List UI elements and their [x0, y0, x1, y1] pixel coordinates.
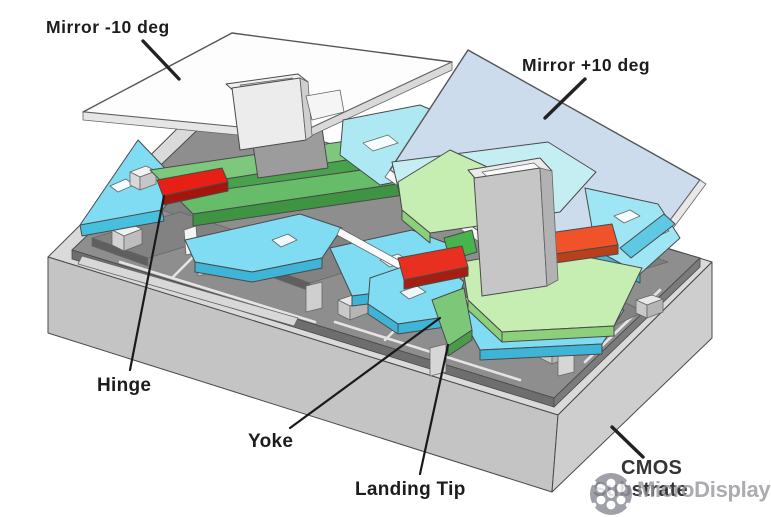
right-mirror-via-tube [468, 158, 558, 296]
flower-icon [590, 473, 632, 515]
yoke-label: Yoke [248, 431, 293, 452]
cmos-label-line1: CMOS [621, 457, 682, 479]
mirror-pos-label: Mirror +10 deg [522, 55, 650, 75]
watermark: MicroDisplay [590, 473, 771, 515]
support-post [306, 282, 322, 312]
cmos-pointer-line [612, 427, 643, 457]
mirror-neg-label: Mirror -10 deg [46, 17, 170, 37]
hinge-label: Hinge [97, 375, 151, 396]
landing-tip-label: Landing Tip [355, 479, 466, 500]
dmd-pixel-diagram: Mirror -10 deg Mirror +10 deg Hinge Yoke… [0, 0, 771, 517]
diagram-canvas: Mirror -10 deg Mirror +10 deg Hinge Yoke… [0, 0, 771, 517]
watermark-text: MicroDisplay [637, 477, 771, 502]
support-post [430, 344, 446, 376]
